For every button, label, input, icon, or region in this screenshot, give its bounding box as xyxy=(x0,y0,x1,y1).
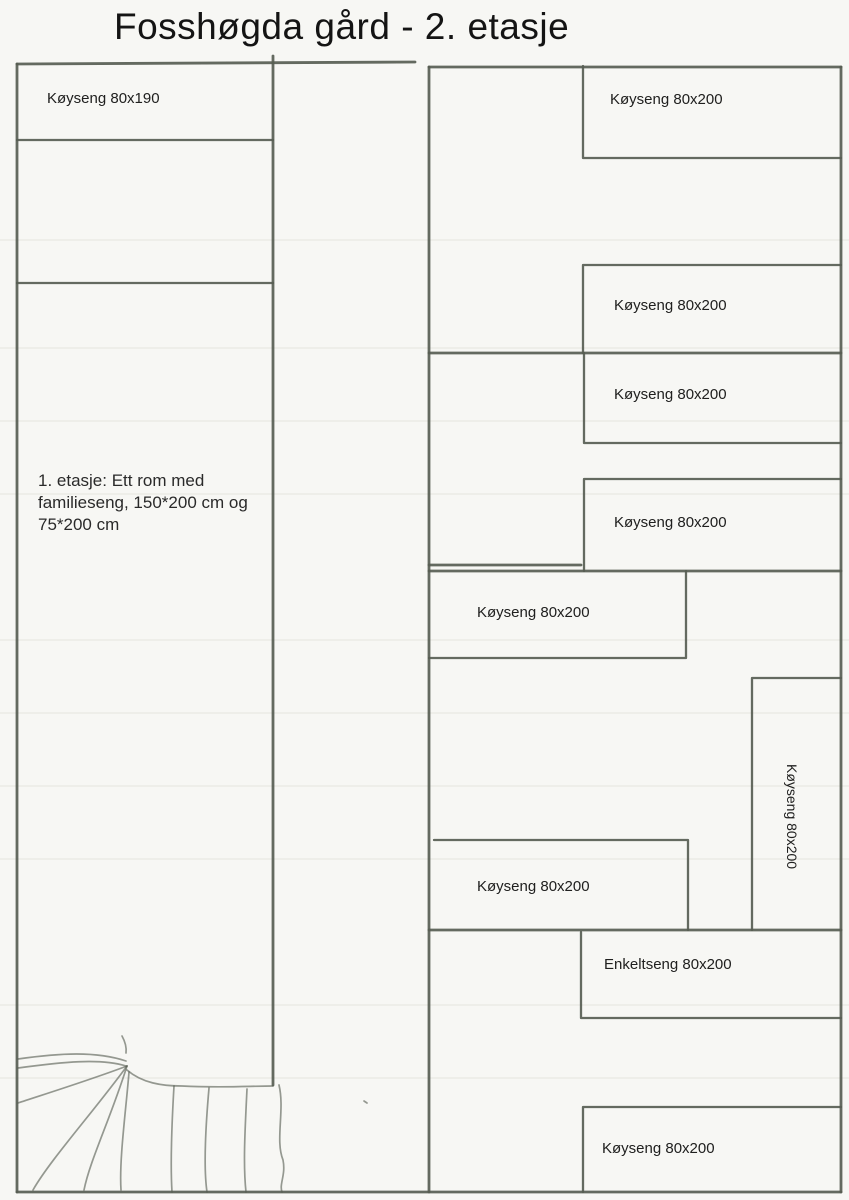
paper-ruling-lines xyxy=(0,240,849,1078)
bed-7-label: Køyseng 80x200 xyxy=(477,878,590,895)
bed-4-label: Køyseng 80x200 xyxy=(614,514,727,531)
floor-note: 1. etasje: Ett rom med familieseng, 150*… xyxy=(38,470,268,536)
stairs-sketch xyxy=(18,1036,367,1192)
bed-2-label: Køyseng 80x200 xyxy=(614,297,727,314)
page-title: Fosshøgda gård - 2. etasje xyxy=(114,6,569,48)
bed-outlines xyxy=(429,66,841,1192)
bed-9-label: Køyseng 80x200 xyxy=(602,1140,715,1157)
bed-1-label: Køyseng 80x200 xyxy=(610,91,723,108)
floor-plan-page: Fosshøgda gård - 2. etasje Køyseng 80x19… xyxy=(0,0,849,1200)
bed-8-label: Enkeltseng 80x200 xyxy=(604,956,732,973)
right-wing-outline xyxy=(429,67,841,1192)
bed-6-label: Køyseng 80x200 xyxy=(784,764,800,869)
left-wing-bed-lines xyxy=(17,140,273,283)
bed-label-left-koyseng-80x190: Køyseng 80x190 xyxy=(47,90,160,107)
bed-3-label: Køyseng 80x200 xyxy=(614,386,727,403)
floor-plan-drawing xyxy=(0,0,849,1200)
bed-5-label: Køyseng 80x200 xyxy=(477,604,590,621)
stray-pencil-dot xyxy=(364,1101,367,1103)
bed-1-outline xyxy=(583,66,841,158)
